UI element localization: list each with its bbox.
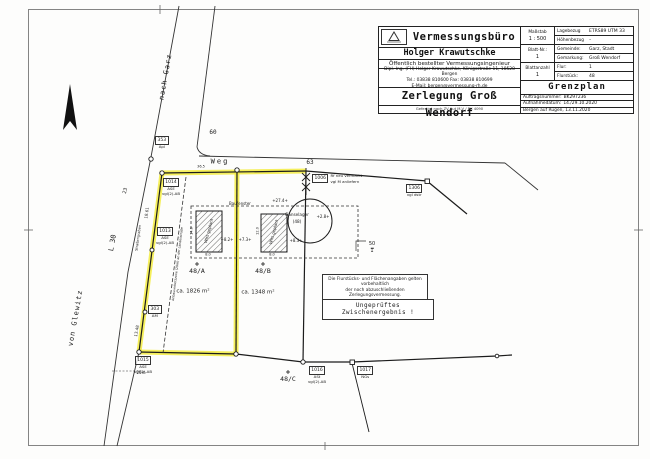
parcel-label-48c: 48/C [280,376,296,383]
point-label-1017: 1017 NGs [357,366,373,380]
title-block: Vermessungsbüro Holger Krawutschke Öffen… [378,26,634,114]
title-block-footnote: Gefertigt nach ZV-Aut M-V / BK 4090 [379,106,520,113]
gaenselager-label-line2: (48) [293,220,302,224]
flur-row: Flur: 1 [555,63,633,72]
parcel-center-markers [195,262,290,374]
dim-top-width: +27.4+ [272,199,288,203]
parcel-label-50-1: 50 1 [369,242,375,255]
office-logo-icon [381,29,407,45]
interim-result-note: Ungeprüftes Zwischenergebnis ! [322,299,434,320]
office-address: Dipl.-Ing. (FH) Holger Krawutschke, Köni… [379,69,520,88]
place-date-row: Bergen auf Rügen, 13.11.2020 [521,108,633,113]
ref-row: Lagebezug ETRS89 UTM 33 [555,27,633,36]
parcel-area-48a: ca. 1826 m² [176,289,209,295]
sheet-count-cell: Blattanzahl 1 [521,63,554,80]
neighbor-parcel-bottom: 1 [370,247,373,254]
parcel-row: Flurstück: 48 [555,72,633,80]
point-label-353: 353 Apl [155,136,169,150]
municipality-row: Gemeinde: Garz, Stadt [555,45,633,54]
project-title: Zerlegung Groß Wendorf [379,88,520,106]
title-block-left: Vermessungsbüro Holger Krawutschke Öffen… [379,27,521,113]
address-line-2: Tel.: 03838 810600 Fax: 03838 810699 [379,78,520,83]
dim-offset: +2.8+ [316,215,329,219]
sheet-no-cell: Blatt-Nr.: 1 [521,45,554,63]
document-type: Grenzplan [521,81,633,95]
office-header: Vermessungsbüro [379,27,520,48]
parcel-number-60: 60 [209,130,216,136]
point-label-1306: 1306 vgl dstr [406,184,422,198]
boundary-point-markers [137,157,499,365]
point-label-1006: 1006 Rf neu vermarkt vgl M anliefern [312,174,362,185]
neighbor-parcel-corner [356,241,366,251]
location-info-column: Lagebezug ETRS89 UTM 33 Höhenbezug – Gem… [555,27,633,80]
parcel-area-48b: ca. 1348 m² [241,290,274,296]
point-label-1016: 1016 ASt vgl(2)-AB [308,366,326,384]
dim-b2-height: 12.0 [256,227,260,235]
dim-b1-height: 14.0 [190,227,194,235]
height-ref-row: Höhenbezug – [555,36,633,45]
scale-cell: Maßstab 1 : 500 [521,27,554,45]
district-row: Gemarkung: Groß Wendorf [555,54,633,63]
dim-road-front: 36.5 [197,165,205,169]
sheet-info-column: Maßstab 1 : 500 Blatt-Nr.: 1 Blattanzahl… [521,27,555,80]
surveyor-name: Holger Krawutschke [379,48,520,60]
dim-b2-width: 8.0 [269,253,275,257]
dim-gap-right: +8.3+ [289,239,302,243]
parcel-label-48a: 48/A [189,268,205,275]
office-title: Vermessungsbüro [410,31,518,43]
road-number-63: 63 [306,160,313,166]
point-label-1015: 1015 ASE vgl(2)-AB [134,356,152,374]
north-arrow-icon [63,84,77,130]
point-label-303: 303 AM [148,305,162,319]
dim-gap-left: +8.2+ [220,238,233,242]
baufenster-label: Baufenster [229,202,251,206]
disclaimer-line-2: der noch abzuschließenden Zerlegungsverm… [325,288,425,299]
plan-sheet: Weg 63 nach Garz L 30 von Glewitz Straße… [0,0,650,459]
dim-gap-mid: +7.3+ [238,238,251,242]
dim-b1-width: 8.0 [205,253,211,257]
disclaimer-note: Die Flurstücks- und Flächenangaben gelte… [322,274,428,301]
title-block-right: Maßstab 1 : 500 Blatt-Nr.: 1 Blattanzahl… [521,27,633,113]
parcel-label-48b: 48/B [255,268,271,275]
point-label-1013: 1013 ASE vgl(2)-AB [156,227,174,245]
address-line-1: Dipl.-Ing. (FH) Holger Krawutschke, Köni… [379,67,520,77]
point-label-1014: 1014 ASE vgl(2)-AB [162,178,180,196]
road-label-weg: Weg [211,159,230,166]
gaenselager-label-line1: Gänselager [285,213,309,217]
disclaimer-line-1: Die Flurstücks- und Flächenangaben gelte… [325,277,425,288]
